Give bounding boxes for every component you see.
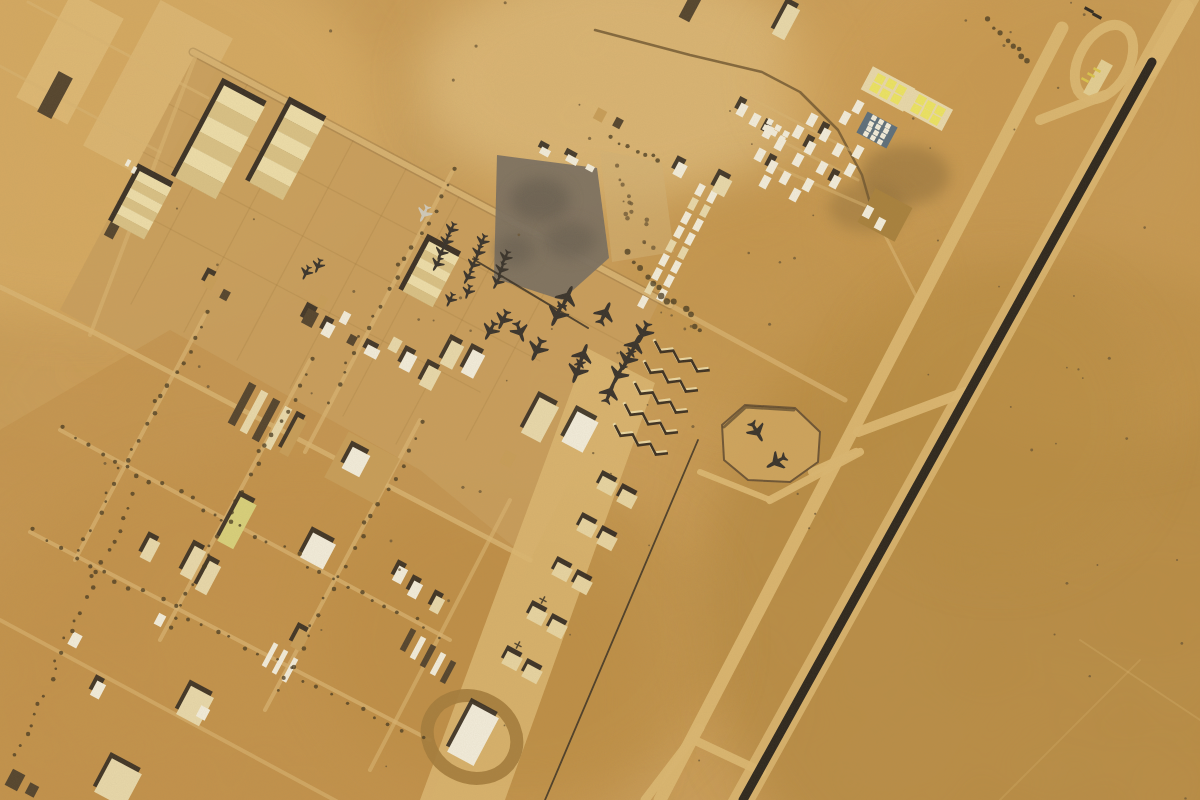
satellite-scene <box>0 0 1200 800</box>
satellite-image <box>0 0 1200 800</box>
film-grain <box>0 0 1200 800</box>
